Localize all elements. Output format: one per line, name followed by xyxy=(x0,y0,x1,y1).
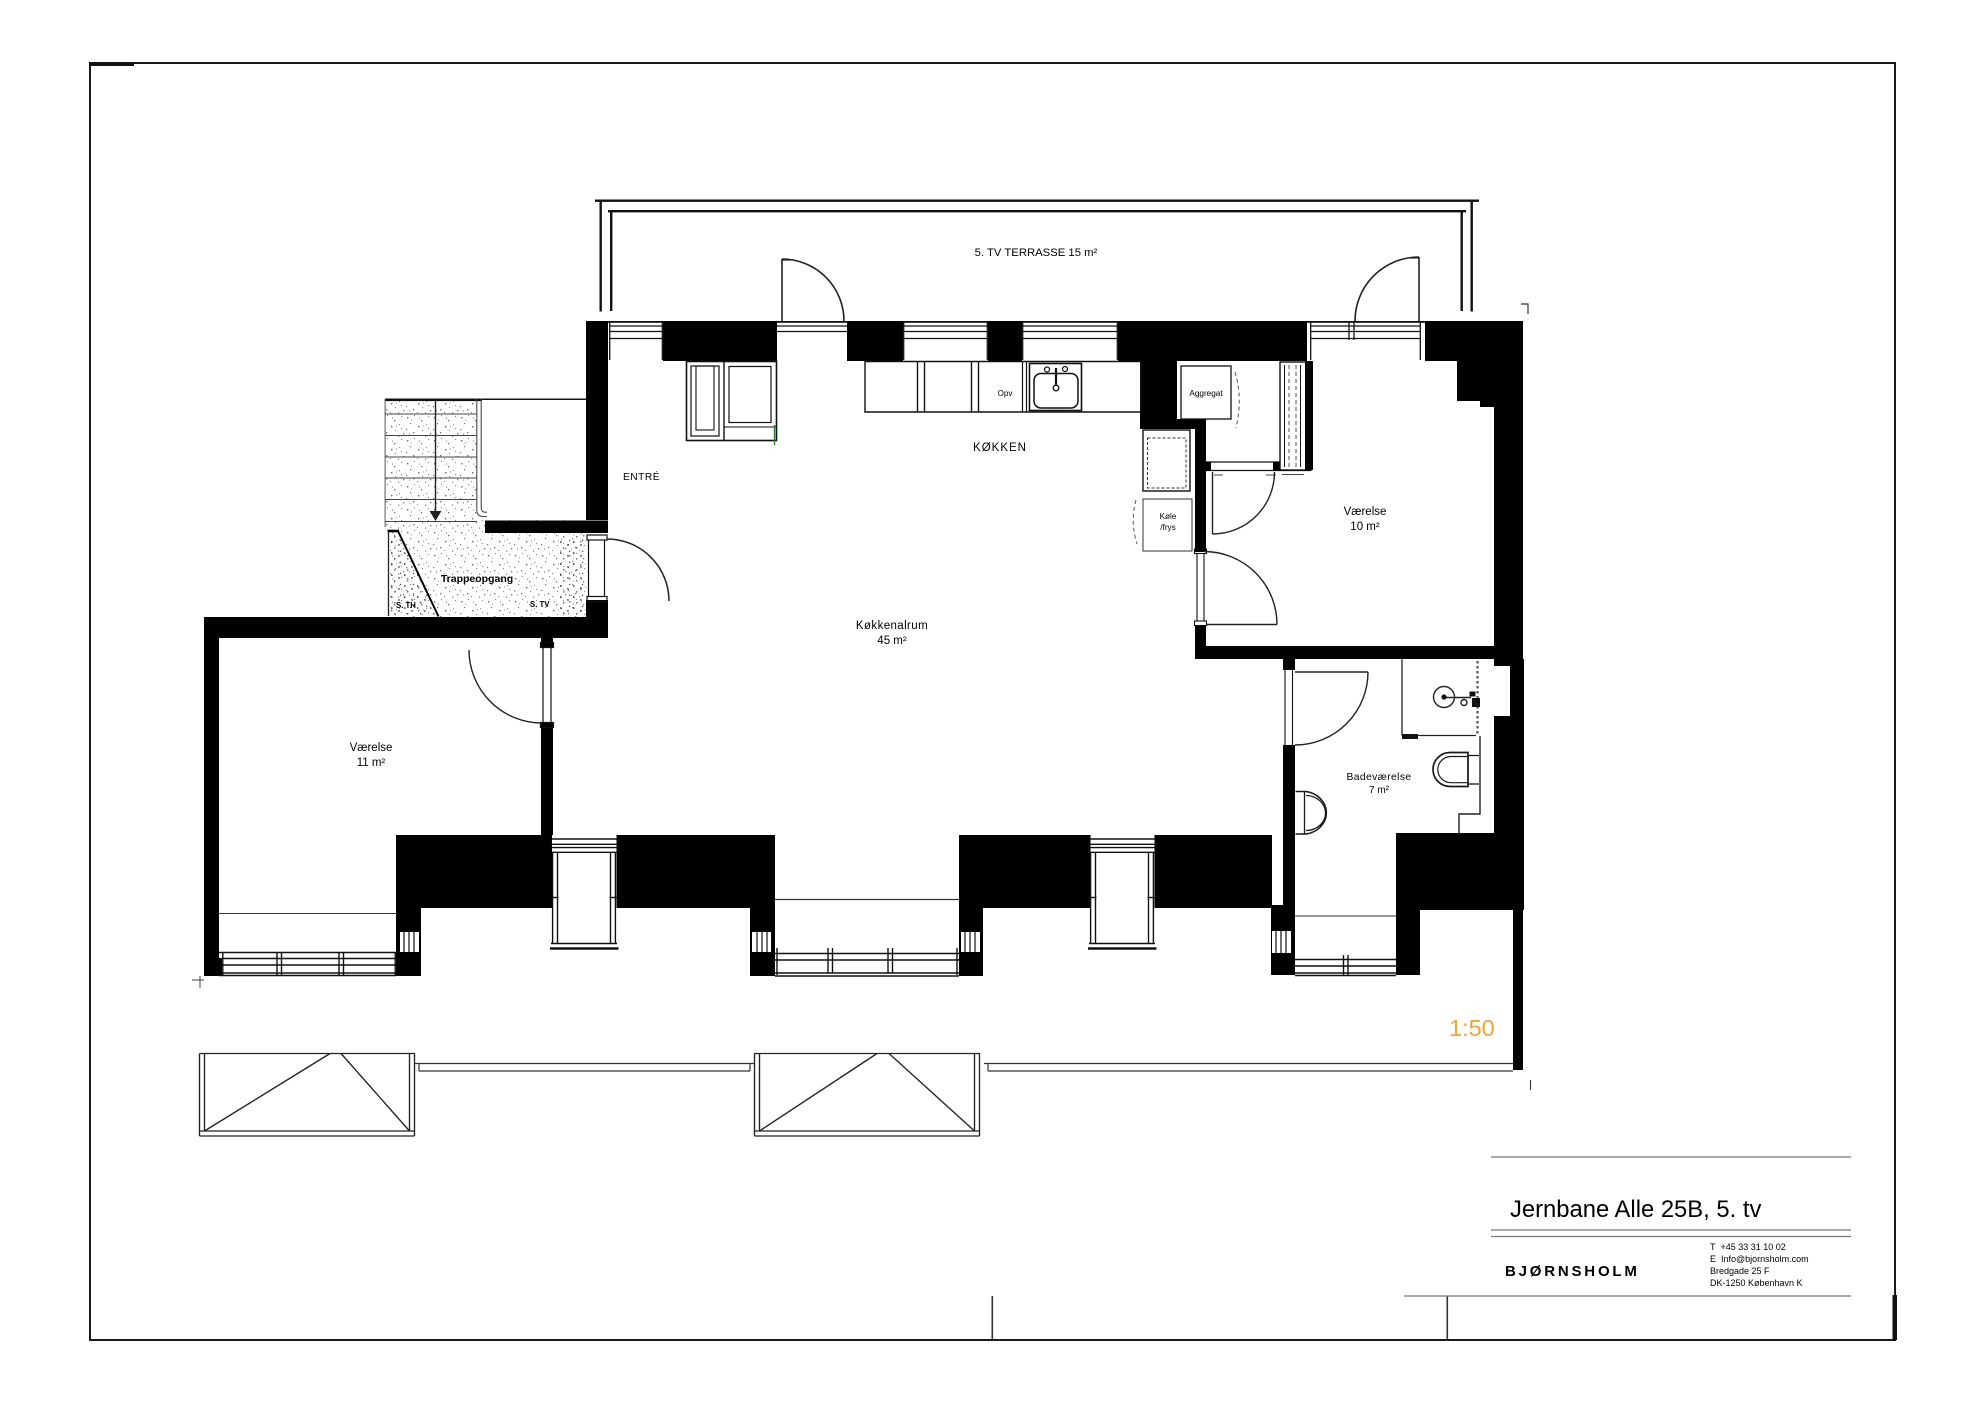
svg-text:Køkkenalrum: Køkkenalrum xyxy=(856,620,928,632)
svg-text:T +45 33 31 10 02: T +45 33 31 10 02 xyxy=(1710,1242,1786,1252)
svg-text:Bredgade 25 F: Bredgade 25 F xyxy=(1710,1266,1770,1276)
svg-text:Jernbane Alle 25B, 5. tv: Jernbane Alle 25B, 5. tv xyxy=(1510,1196,1761,1223)
svg-text:10 m²: 10 m² xyxy=(1350,521,1380,533)
svg-text:Badeværelse: Badeværelse xyxy=(1346,772,1411,783)
svg-text:DK-1250 København K: DK-1250 København K xyxy=(1710,1278,1803,1288)
svg-text:BJØRNSHOLM: BJØRNSHOLM xyxy=(1505,1263,1640,1280)
svg-text:S. TH: S. TH xyxy=(396,601,416,610)
svg-text:Køle: Køle xyxy=(1160,512,1177,521)
svg-text:Trappeopgang: Trappeopgang xyxy=(441,573,513,585)
svg-text:Værelse: Værelse xyxy=(1344,506,1387,518)
svg-text:E Info@bjornsholm.com: E Info@bjornsholm.com xyxy=(1710,1254,1809,1264)
svg-text:ENTRÉ: ENTRÉ xyxy=(623,470,660,483)
svg-text:45 m²: 45 m² xyxy=(877,635,907,647)
svg-text:Værelse: Værelse xyxy=(350,742,393,754)
svg-text:5. TV TERRASSE 15 m²: 5. TV TERRASSE 15 m² xyxy=(975,247,1098,259)
svg-text:11 m²: 11 m² xyxy=(357,757,386,769)
svg-text:1:50: 1:50 xyxy=(1449,1015,1495,1041)
svg-text:/frys: /frys xyxy=(1160,523,1175,532)
svg-text:Aggregat: Aggregat xyxy=(1189,389,1223,398)
svg-text:S. TV: S. TV xyxy=(530,600,550,609)
svg-text:7 m²: 7 m² xyxy=(1369,785,1390,796)
svg-text:KØKKEN: KØKKEN xyxy=(973,442,1027,454)
svg-text:Opv: Opv xyxy=(998,389,1013,398)
